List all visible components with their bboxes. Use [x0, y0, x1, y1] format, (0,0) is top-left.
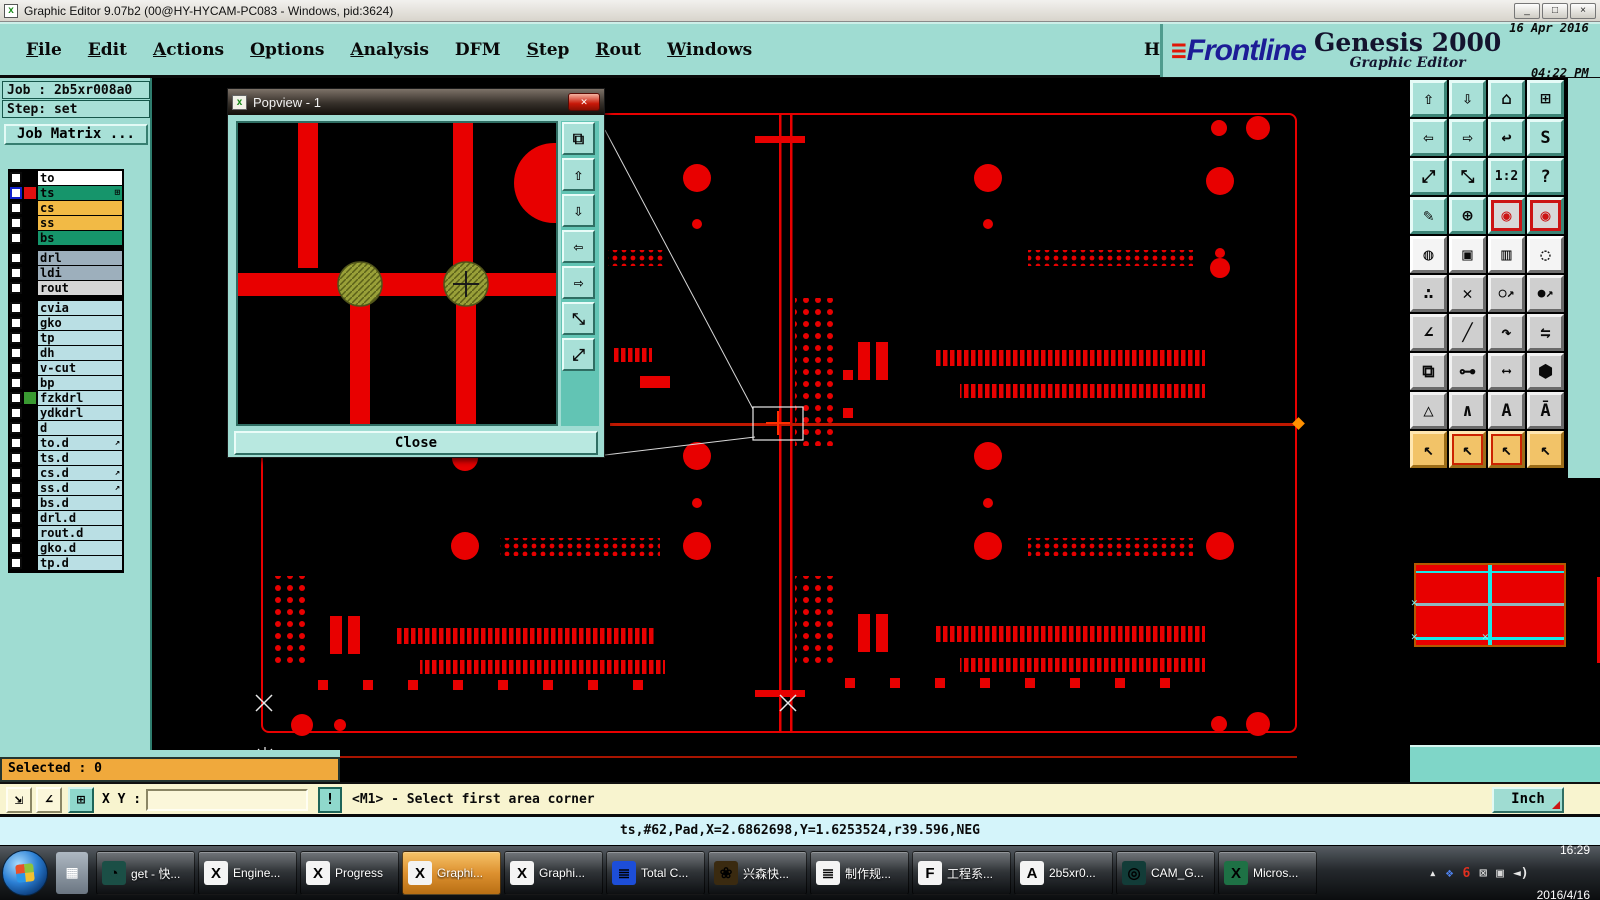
popview-zoom-out-button[interactable]: ⤢: [562, 338, 595, 371]
select-chevron-button[interactable]: ∧: [1449, 392, 1486, 429]
taskbar-item-icon: X: [306, 861, 330, 885]
origin-grid-button[interactable]: ⊕: [1449, 197, 1486, 234]
popview-title: Popview - 1: [253, 95, 321, 110]
layer-name[interactable]: ts⊞: [38, 186, 122, 200]
windows-logo-icon: [15, 863, 35, 883]
layer-name[interactable]: ts.d: [38, 451, 122, 465]
popview-canvas[interactable]: [236, 121, 558, 426]
layer-name[interactable]: rout: [38, 281, 122, 295]
layer-name[interactable]: cs: [38, 201, 122, 215]
popview-pan-down-button[interactable]: ⇩: [562, 194, 595, 227]
layer-swatch: [24, 482, 36, 494]
select-round-button[interactable]: ◌: [1527, 236, 1564, 273]
layer-swatch: [24, 512, 36, 524]
copy-pad-button[interactable]: ⧉: [1410, 353, 1447, 390]
layer-list: to ts⊞ cs: [8, 169, 124, 573]
overview-thumbnail[interactable]: ✕ ✕ ✕: [1414, 563, 1566, 647]
layer-checkbox[interactable]: [10, 332, 22, 344]
taskbar-item[interactable]: X Micros...: [1218, 851, 1317, 895]
layer-name[interactable]: ss: [38, 216, 122, 230]
select-arch-button[interactable]: A: [1488, 392, 1525, 429]
layer-name[interactable]: drl: [38, 251, 122, 265]
taskbar-item-icon: X: [408, 861, 432, 885]
pointer-box-button[interactable]: ↖: [1449, 431, 1486, 468]
layer-row[interactable]: cs: [10, 201, 122, 215]
measure-distance-button[interactable]: ⟷: [1488, 353, 1525, 390]
layer-swatch: [24, 217, 36, 229]
ruler-button[interactable]: ▥: [1488, 236, 1525, 273]
layer-checkbox[interactable]: [10, 317, 22, 329]
layer-swatch: [24, 232, 36, 244]
layer-name[interactable]: tp: [38, 331, 122, 345]
taskbar-item-icon: A: [1020, 861, 1044, 885]
pan-up-button[interactable]: ⇧: [1410, 80, 1447, 117]
popview-clone-button[interactable]: ⧉: [562, 122, 595, 155]
menu-item[interactable]: Edit: [88, 40, 127, 60]
window-title: Graphic Editor 9.07b2 (00@HY-HYCAM-PC083…: [24, 4, 393, 18]
layer-row[interactable]: to.d↗: [10, 436, 122, 450]
layer-name[interactable]: bp: [38, 376, 122, 390]
taskbar-item-icon: X: [1224, 861, 1248, 885]
layer-checkbox[interactable]: [10, 217, 22, 229]
taskbar-clock[interactable]: 16:29 2016/4/16: [1537, 813, 1600, 900]
arc-button[interactable]: ↷: [1488, 314, 1525, 351]
taskbar-item[interactable]: X Engine...: [198, 851, 297, 895]
layer-row[interactable]: to: [10, 171, 122, 185]
step-label: Step: set: [2, 100, 150, 118]
help-mode-button[interactable]: ?: [1527, 158, 1564, 195]
xy-label: X Y :: [102, 792, 141, 807]
layer-checkbox[interactable]: [10, 377, 22, 389]
taskbar-item-icon: ◔: [102, 861, 126, 885]
layer-name[interactable]: bs.d: [38, 496, 122, 510]
menu-item[interactable]: Actions: [153, 40, 224, 60]
menu-item[interactable]: DFM: [455, 40, 501, 60]
tray-expand-icon[interactable]: ▴: [1429, 866, 1437, 881]
layer-swatch: [24, 377, 36, 389]
popview-artwork: [238, 123, 556, 424]
brand-panel: ≡ Frontline Genesis 2000 Graphic Editor …: [1160, 24, 1600, 77]
setup-button[interactable]: ✎: [1410, 197, 1447, 234]
snap-corner-button[interactable]: ⇲: [6, 787, 32, 813]
layer-checkbox[interactable]: [10, 407, 22, 419]
layer-checkbox[interactable]: [10, 422, 22, 434]
layer-checkbox[interactable]: [10, 252, 22, 264]
layer-checkbox[interactable]: [10, 527, 22, 539]
toolbar-edge: [1568, 78, 1600, 478]
taskbar-item[interactable]: F 工程系...: [912, 851, 1011, 895]
menu-item[interactable]: File: [26, 40, 62, 60]
layer-display-button[interactable]: ◉: [1488, 197, 1525, 234]
redraw-button[interactable]: S: [1527, 119, 1564, 156]
units-dropdown-icon: [1552, 801, 1560, 809]
zoom-1-2-button[interactable]: 1:2: [1488, 158, 1525, 195]
mirror-button[interactable]: ⇋: [1527, 314, 1564, 351]
layer-row[interactable]: ss.d↗: [10, 481, 122, 495]
move-open-button[interactable]: ○↗: [1488, 275, 1525, 312]
layer-checkbox[interactable]: [10, 187, 22, 199]
layer-row[interactable]: drl.d: [10, 511, 122, 525]
layer-row[interactable]: bp: [10, 376, 122, 390]
app-icon: x: [4, 4, 18, 18]
layer-checkbox[interactable]: [10, 362, 22, 374]
layer-row[interactable]: ss: [10, 216, 122, 230]
taskbar-item[interactable]: ❀ 兴森快...: [708, 851, 807, 895]
layer-row[interactable]: ydkdrl: [10, 406, 122, 420]
toolbar: ⇧ ⇩ ⌂ ⊞ ⇦ ⇨ ↩ S ⤢ ⤡ 1:2 ? ✎ ⊕ ◉ ◉: [1410, 80, 1568, 468]
layer-swatch: [24, 407, 36, 419]
popview-pan-left-button[interactable]: ⇦: [562, 230, 595, 263]
pan-left-button[interactable]: ⇦: [1410, 119, 1447, 156]
selected-count: Selected : 0: [0, 757, 340, 782]
popview-close-button[interactable]: Close: [234, 431, 598, 455]
pan-right-button[interactable]: ⇨: [1449, 119, 1486, 156]
layer-checkbox[interactable]: [10, 542, 22, 554]
layer-checkbox[interactable]: [10, 202, 22, 214]
alert-button[interactable]: !: [318, 787, 342, 813]
layer-name[interactable]: ldi: [38, 266, 122, 280]
taskbar: ▦ ◔ get - 快... X Engine... X Progress: [0, 845, 1600, 900]
layer-checkbox[interactable]: [10, 347, 22, 359]
layer-checkbox[interactable]: [10, 392, 22, 404]
layer-swatch: [24, 557, 36, 569]
grid-window-button[interactable]: ⊞: [68, 787, 94, 813]
tray-volume-icon[interactable]: ◄): [1513, 866, 1529, 881]
layer-name[interactable]: bs: [38, 231, 122, 245]
taskbar-item-icon: ≣: [612, 861, 636, 885]
layer-swatch: [24, 392, 36, 404]
layer-swatch: [24, 187, 36, 199]
layer-swatch: [24, 317, 36, 329]
popview-close-icon[interactable]: ✕: [568, 93, 600, 111]
taskbar-item-icon: X: [510, 861, 534, 885]
select-triangle-button[interactable]: △: [1410, 392, 1447, 429]
layer-badge-icon: ↗: [115, 436, 120, 450]
taskbar-item[interactable]: X Graphi...: [504, 851, 603, 895]
layer-row[interactable]: bs.d: [10, 496, 122, 510]
popview-window-icon: x: [232, 95, 247, 110]
layer-badge-icon: ⊞: [115, 186, 120, 200]
tray-thunder-icon[interactable]: 6: [1462, 866, 1470, 881]
popview-window: x Popview - 1 ✕: [227, 88, 605, 458]
pointer-button[interactable]: ↖: [1410, 431, 1447, 468]
layer-checkbox[interactable]: [10, 232, 22, 244]
layer-checkbox[interactable]: [10, 282, 22, 294]
frontline-logo: Frontline: [1187, 34, 1306, 68]
pan-down-button[interactable]: ⇩: [1449, 80, 1486, 117]
overview-panel: ✕ ✕ ✕: [1410, 478, 1600, 745]
tray-network-error-icon[interactable]: ⊠: [1479, 866, 1487, 881]
xy-input[interactable]: [146, 789, 308, 811]
prompt-message: <M1> - Select first area corner: [352, 792, 595, 807]
layer-swatch: [24, 467, 36, 479]
menu-item[interactable]: Options: [250, 40, 324, 60]
stretch-button[interactable]: ⊶: [1449, 353, 1486, 390]
taskbar-item[interactable]: ◔ get - 快...: [96, 851, 195, 895]
layer-row[interactable]: tp.d: [10, 556, 122, 570]
layer-row[interactable]: v-cut: [10, 361, 122, 375]
layer-name[interactable]: to: [38, 171, 122, 185]
layer-row[interactable]: gko.d: [10, 541, 122, 555]
menu-bar: File Edit Actions Options Analysis DFM S…: [0, 22, 1600, 78]
layer-row[interactable]: ts⊞: [10, 186, 122, 200]
layer-row[interactable]: drl: [10, 251, 122, 265]
taskbar-item[interactable]: ≣ 制作规...: [810, 851, 909, 895]
layer-row[interactable]: cvia: [10, 301, 122, 315]
taskbar-item-icon: X: [204, 861, 228, 885]
layer-row[interactable]: rout: [10, 281, 122, 295]
layer-checkbox[interactable]: [10, 302, 22, 314]
layer-swatch: [24, 332, 36, 344]
layer-swatch: [24, 302, 36, 314]
pointer-poly-button[interactable]: ↖: [1488, 431, 1525, 468]
command-bar: ⇲ ∠ ⊞ X Y : ! <M1> - Select first area c…: [0, 782, 1600, 814]
layer-checkbox[interactable]: [10, 467, 22, 479]
layer-swatch: [24, 497, 36, 509]
layer-badge-icon: ↗: [115, 481, 120, 495]
popview-pan-up-button[interactable]: ⇧: [562, 158, 595, 191]
popview-zoom-in-button[interactable]: ⤡: [562, 302, 595, 335]
application-window: x Graphic Editor 9.07b2 (00@HY-HYCAM-PC0…: [0, 0, 1600, 900]
layer-row[interactable]: ldi: [10, 266, 122, 280]
move-solid-button[interactable]: ●↗: [1527, 275, 1564, 312]
units-button[interactable]: Inch: [1492, 787, 1564, 813]
layer-row[interactable]: ts.d: [10, 451, 122, 465]
layer-row[interactable]: tp: [10, 331, 122, 345]
layer-swatch: [24, 282, 36, 294]
taskbar-item[interactable]: X Progress: [300, 851, 399, 895]
job-label: Job : 2b5xr008a0: [2, 81, 150, 99]
selected-strip: [0, 750, 340, 757]
layer-swatch: [24, 527, 36, 539]
layer-checkbox[interactable]: [10, 267, 22, 279]
title-bar: x Graphic Editor 9.07b2 (00@HY-HYCAM-PC0…: [0, 0, 1600, 22]
layer-name[interactable]: cs.d↗: [38, 466, 122, 480]
product-name: Genesis 2000: [1314, 31, 1501, 55]
calculator-icon[interactable]: ▦: [56, 852, 88, 894]
menu-item[interactable]: Analysis: [350, 40, 429, 60]
layer-name[interactable]: rout.d: [38, 526, 122, 540]
layer-row[interactable]: dh: [10, 346, 122, 360]
layer-row[interactable]: d: [10, 421, 122, 435]
layer-swatch: [24, 252, 36, 264]
job-matrix-button[interactable]: Job Matrix ...: [4, 124, 148, 145]
tray-network-icon[interactable]: ▣: [1496, 866, 1504, 881]
snap-angle-button[interactable]: ∠: [36, 787, 62, 813]
taskbar-item[interactable]: ◎ CAM_G...: [1116, 851, 1215, 895]
layer-name[interactable]: to.d↗: [38, 436, 122, 450]
layer-swatch: [24, 542, 36, 554]
taskbar-item[interactable]: A 2b5xr0...: [1014, 851, 1113, 895]
home-view-button[interactable]: ⌂: [1488, 80, 1525, 117]
layer-badge-icon: ↗: [115, 466, 120, 480]
coordinate-readout: X = 2.711369" Y = 0.404644": [1410, 745, 1600, 782]
layer-row[interactable]: fzkdrl: [10, 391, 122, 405]
date-label: 16 Apr 2016: [1509, 21, 1588, 36]
layer-name[interactable]: gko: [38, 316, 122, 330]
highlight-pad-button[interactable]: ◍: [1410, 236, 1447, 273]
layer-row[interactable]: cs.d↗: [10, 466, 122, 480]
window-xy-button[interactable]: ⊞: [1527, 80, 1564, 117]
layer-checkbox[interactable]: [10, 172, 22, 184]
select-arch-ticks-button[interactable]: Ā: [1527, 392, 1564, 429]
slope-button[interactable]: ╱: [1449, 314, 1486, 351]
taskbar-item-icon: ❀: [714, 861, 738, 885]
pointer-net-button[interactable]: ↖: [1527, 431, 1564, 468]
taskbar-item-icon: ≣: [816, 861, 840, 885]
menu-item[interactable]: Windows: [667, 40, 752, 60]
layer-row[interactable]: bs: [10, 231, 122, 245]
layer-name[interactable]: gko.d: [38, 541, 122, 555]
layer-row[interactable]: gko: [10, 316, 122, 330]
layer-name[interactable]: ydkdrl: [38, 406, 122, 420]
layer-display-alt-button[interactable]: ◉: [1527, 197, 1564, 234]
taskbar-item[interactable]: ≣ Total C...: [606, 851, 705, 895]
layer-name[interactable]: d: [38, 421, 122, 435]
layer-swatch: [24, 202, 36, 214]
frontline-lines-icon: ≡: [1171, 41, 1187, 61]
menu-item[interactable]: Rout: [595, 40, 641, 60]
layer-swatch: [24, 422, 36, 434]
layer-name[interactable]: ss.d↗: [38, 481, 122, 495]
layer-name[interactable]: fzkdrl: [38, 391, 122, 405]
taskbar-item-icon: ◎: [1122, 861, 1146, 885]
zoom-area-button[interactable]: ▣: [1449, 236, 1486, 273]
start-button[interactable]: [2, 850, 48, 896]
feature-info-bar: ts,#62,Pad,X=2.6862698,Y=1.6253524,r39.5…: [0, 814, 1600, 845]
tray-app-icon[interactable]: ❖: [1446, 866, 1454, 881]
zoom-in-button[interactable]: ⤡: [1449, 158, 1486, 195]
zoom-out-button[interactable]: ⤢: [1410, 158, 1447, 195]
taskbar-item[interactable]: X Graphi...: [402, 851, 501, 895]
layer-checkbox[interactable]: [10, 512, 22, 524]
previous-view-button[interactable]: ↩: [1488, 119, 1525, 156]
menu-item[interactable]: Step: [527, 40, 570, 60]
taskbar-item-icon: F: [918, 861, 942, 885]
surface-button[interactable]: ⬢: [1527, 353, 1564, 390]
layer-name[interactable]: v-cut: [38, 361, 122, 375]
product-subtitle: Graphic Editor: [1314, 55, 1501, 71]
layer-row[interactable]: rout.d: [10, 526, 122, 540]
net-points-button[interactable]: ∴: [1410, 275, 1447, 312]
angle-button[interactable]: ∠: [1410, 314, 1447, 351]
sidebar: Job : 2b5xr008a0 Step: set Job Matrix ..…: [0, 78, 152, 757]
layer-swatch: [24, 362, 36, 374]
delete-x-button[interactable]: ✕: [1449, 275, 1486, 312]
popview-pan-right-button[interactable]: ⇨: [562, 266, 595, 299]
layer-name[interactable]: cvia: [38, 301, 122, 315]
layer-checkbox[interactable]: [10, 557, 22, 569]
layer-name[interactable]: tp.d: [38, 556, 122, 570]
layer-swatch: [24, 172, 36, 184]
layer-swatch: [24, 267, 36, 279]
layer-name[interactable]: drl.d: [38, 511, 122, 525]
layer-swatch: [24, 437, 36, 449]
layer-swatch: [24, 452, 36, 464]
layer-checkbox[interactable]: [10, 452, 22, 464]
layer-checkbox[interactable]: [10, 437, 22, 449]
layer-checkbox[interactable]: [10, 497, 22, 509]
layer-checkbox[interactable]: [10, 482, 22, 494]
layer-name[interactable]: dh: [38, 346, 122, 360]
popview-title-bar[interactable]: x Popview - 1 ✕: [228, 89, 604, 115]
layer-swatch: [24, 347, 36, 359]
